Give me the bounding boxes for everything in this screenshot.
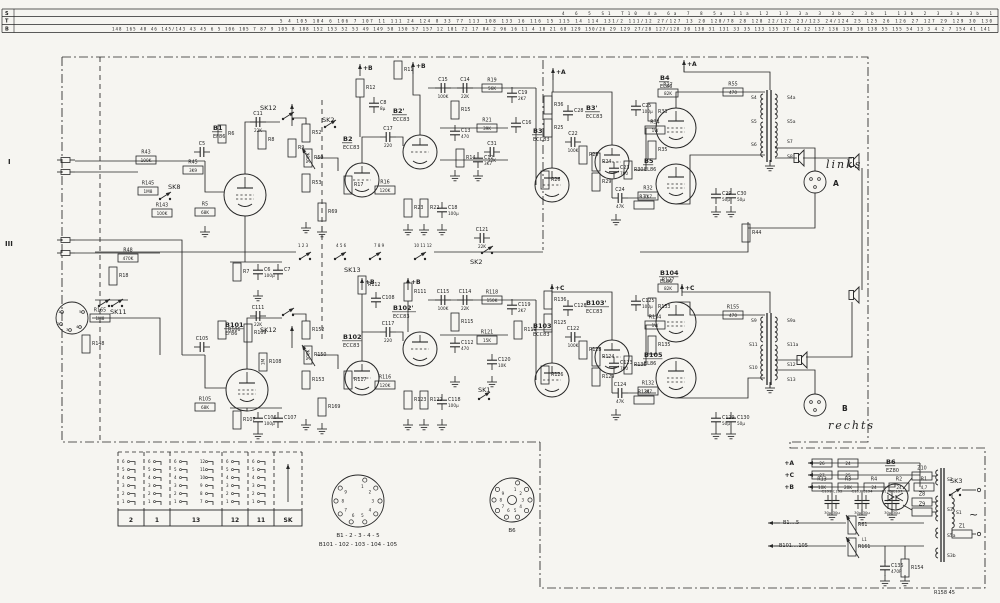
ref-R169: R169 bbox=[328, 404, 341, 410]
wire bbox=[362, 137, 380, 163]
coil bbox=[761, 345, 763, 365]
rect-shape bbox=[912, 508, 932, 516]
wire bbox=[260, 478, 265, 481]
path-shape bbox=[545, 389, 559, 392]
boundary-main-left bbox=[62, 57, 540, 442]
contact-pin-1: 1 bbox=[252, 499, 255, 504]
circle-shape bbox=[374, 486, 378, 490]
ref-R17: R17 bbox=[354, 182, 363, 188]
ref-Z10: Z10 bbox=[917, 466, 926, 472]
text-S3: S3 bbox=[947, 507, 953, 513]
circle-shape bbox=[206, 485, 208, 487]
ref-R48: R48 bbox=[123, 248, 132, 254]
circle-shape bbox=[180, 501, 182, 503]
output-transformer-right bbox=[761, 313, 777, 385]
circle-shape bbox=[814, 186, 817, 189]
tube-id-B2: B2 bbox=[343, 135, 352, 143]
ref-C122: C122 bbox=[567, 326, 580, 332]
rect-shape bbox=[456, 149, 464, 167]
wire bbox=[260, 486, 265, 489]
rail-+B: +B bbox=[358, 64, 373, 76]
wire bbox=[234, 478, 239, 481]
arrowhead bbox=[358, 64, 362, 69]
arrowhead bbox=[290, 326, 294, 331]
part-R155: 470R155 bbox=[723, 305, 743, 320]
ground-symbol bbox=[253, 290, 263, 301]
part-C122: C122100K bbox=[565, 326, 581, 348]
ref-R18: R18 bbox=[119, 273, 128, 279]
ground-symbol bbox=[301, 222, 311, 233]
contact-pin-4: 4 bbox=[226, 475, 229, 480]
wire bbox=[684, 66, 770, 90]
text-SK12: SK12 bbox=[260, 104, 277, 112]
rect-shape bbox=[394, 61, 402, 79]
rail-+C: +C bbox=[550, 284, 565, 296]
part-R152: R152 bbox=[302, 321, 325, 339]
contact-pin-2: 2 bbox=[122, 491, 125, 496]
wire bbox=[748, 193, 815, 228]
arrowhead bbox=[680, 284, 684, 289]
coil bbox=[775, 365, 777, 380]
wire bbox=[260, 462, 265, 465]
ref-C107: C107 bbox=[284, 415, 297, 421]
part-R165: 1M8R165 bbox=[90, 308, 110, 323]
contact-pin-4: 4 bbox=[174, 475, 177, 480]
ref-C14: C14 bbox=[460, 77, 469, 83]
part-R50: 500KR50 bbox=[302, 148, 323, 169]
value-R21: 39K bbox=[483, 126, 491, 131]
coil bbox=[761, 317, 763, 342]
part-R26: R26 bbox=[541, 171, 560, 189]
path-shape bbox=[413, 161, 427, 164]
switch-contact bbox=[414, 252, 426, 260]
arrowhead bbox=[286, 464, 290, 469]
coil bbox=[775, 122, 777, 142]
tube-type-B2: ECC83 bbox=[343, 145, 360, 151]
rect-shape bbox=[233, 411, 241, 429]
arrowhead bbox=[956, 488, 961, 492]
wire bbox=[260, 470, 265, 473]
tube-B103: B103ECC83 bbox=[532, 322, 569, 397]
ref-R108: R108 bbox=[269, 359, 282, 365]
ground-symbol bbox=[419, 419, 429, 430]
part-R153: R153 bbox=[302, 371, 325, 389]
jack-icon bbox=[57, 158, 75, 163]
arrowhead bbox=[306, 252, 311, 256]
circle-shape bbox=[154, 493, 156, 495]
ground-symbol bbox=[403, 224, 413, 235]
text-S4a: S4a bbox=[787, 95, 796, 101]
text-S5: S5 bbox=[751, 119, 757, 125]
pin-5: 5 bbox=[514, 508, 517, 513]
coil bbox=[952, 498, 954, 528]
part-R69: R69 bbox=[318, 203, 337, 221]
rail-+A: +A bbox=[784, 460, 820, 467]
jack-icon bbox=[57, 170, 75, 175]
ref-C105: C105 bbox=[196, 336, 209, 342]
ref-C128: C128 bbox=[574, 303, 587, 309]
ref-R161: R161 bbox=[858, 544, 871, 550]
table-col-label-13: 13 bbox=[192, 517, 200, 524]
wire bbox=[208, 502, 213, 505]
table-column-2: 6543212 bbox=[122, 459, 135, 524]
tube-B102': B102'ECC83 bbox=[392, 304, 437, 366]
tube-id-B3: B3 bbox=[533, 127, 542, 135]
switch-contact bbox=[334, 252, 346, 260]
part-R143: 100KR143 bbox=[152, 203, 172, 218]
circle-shape bbox=[344, 258, 346, 260]
value-R19: 56K bbox=[488, 86, 496, 91]
tube-id-B6: B6 bbox=[886, 458, 896, 466]
ref-R36: R36 bbox=[554, 102, 563, 108]
contact-pin-3: 3 bbox=[174, 483, 177, 488]
ref-R105: R105 bbox=[199, 397, 212, 403]
part-R55: 470R55 bbox=[723, 82, 743, 97]
circle-shape bbox=[128, 485, 130, 487]
circle-shape bbox=[424, 258, 426, 260]
circle-shape bbox=[206, 501, 208, 503]
ref-R33: R33 bbox=[658, 109, 667, 115]
rail-label-+B: +B bbox=[784, 484, 794, 491]
rect-shape bbox=[258, 131, 266, 149]
ruler-row-label-S: S bbox=[5, 11, 9, 17]
circle-shape bbox=[206, 477, 208, 479]
circle-shape bbox=[128, 493, 130, 495]
table-col-label-1: 1 bbox=[155, 517, 159, 524]
rail-label-+A: +A bbox=[687, 61, 697, 68]
part-R169: R169 bbox=[318, 398, 341, 416]
tube-type-B102': ECC83 bbox=[393, 314, 410, 320]
circle-shape bbox=[495, 508, 499, 512]
part-R36: R36 bbox=[544, 96, 563, 114]
wire bbox=[156, 494, 161, 497]
part-R52: R52 bbox=[302, 124, 321, 142]
ruler-row-text-S: 4 6 5 S1 T10 4a 6a 7 8 5a 11a 12 13 3a 3… bbox=[562, 11, 993, 16]
arrowhead bbox=[550, 284, 554, 289]
ref-C5: C5 bbox=[199, 141, 205, 147]
boundary-main bbox=[62, 57, 868, 442]
part-R161: R161 bbox=[846, 537, 871, 558]
circle-shape bbox=[379, 258, 381, 260]
part-C125: C125100µ bbox=[631, 295, 655, 311]
text-SK11: SK11 bbox=[110, 308, 127, 316]
rail-+B: +B bbox=[360, 278, 375, 290]
part-R107: R107 bbox=[233, 411, 256, 429]
rect-shape bbox=[451, 101, 459, 119]
circle-shape bbox=[818, 401, 821, 404]
value-C120: 10K bbox=[498, 363, 506, 368]
circle-shape bbox=[810, 401, 813, 404]
rect-shape bbox=[288, 139, 296, 157]
ref-R11: R11 bbox=[404, 67, 413, 73]
ground-symbol bbox=[880, 575, 890, 586]
rect-shape bbox=[109, 267, 117, 285]
part-Z9: Z9 bbox=[912, 502, 932, 517]
rail-label-+B: +B bbox=[365, 279, 375, 286]
part-C112: C112470 bbox=[450, 337, 474, 353]
coil bbox=[936, 548, 938, 558]
contact-pin-10: 10 bbox=[200, 475, 206, 480]
value-24: 24 bbox=[845, 461, 851, 466]
circle-shape bbox=[154, 469, 156, 471]
component-locator-ruler: S4 6 5 S1 T10 4a 6a 7 8 5a 11a 12 13 3a … bbox=[2, 9, 998, 33]
part-R129: R129 bbox=[592, 368, 615, 386]
ref-R152: R152 bbox=[312, 327, 325, 333]
text-S11: S11 bbox=[749, 342, 758, 348]
value-C25: 100µ bbox=[642, 109, 653, 114]
circle-shape bbox=[490, 478, 534, 522]
pin-9: 9 bbox=[502, 491, 505, 496]
ref-R143: R143 bbox=[156, 203, 169, 209]
part-R34: 1WR34 bbox=[645, 120, 665, 135]
ref-R45: R45 bbox=[188, 160, 197, 166]
value-C11: 22K bbox=[254, 128, 262, 133]
part-R11: R11 bbox=[394, 61, 413, 79]
path-shape bbox=[669, 137, 683, 140]
circle-shape bbox=[491, 252, 493, 254]
part-C108: C108 bbox=[371, 292, 395, 308]
circle-shape bbox=[56, 302, 88, 334]
circle-shape bbox=[206, 493, 208, 495]
wire bbox=[806, 302, 852, 357]
rect-shape bbox=[404, 391, 412, 409]
ref-R16: R16 bbox=[380, 180, 389, 186]
ref-C17: C17 bbox=[383, 126, 392, 132]
circle-shape bbox=[374, 512, 378, 516]
value-R116: 120K bbox=[380, 383, 391, 388]
value-C118: 100µ bbox=[448, 403, 459, 408]
ref-R50: R50 bbox=[314, 155, 323, 161]
part-C8: C88µ bbox=[369, 97, 386, 113]
text-SK8: SK8 bbox=[168, 183, 181, 191]
tube-type-B5: EL86 bbox=[644, 167, 656, 173]
circle-shape bbox=[69, 329, 72, 332]
ground-symbol bbox=[403, 419, 413, 430]
table-column-12: 65432112 bbox=[226, 459, 239, 524]
ref-C108: C108 bbox=[382, 295, 395, 301]
rect-shape bbox=[514, 321, 522, 339]
outputs bbox=[794, 150, 859, 416]
text-SK1: SK1 bbox=[478, 386, 491, 394]
rect-shape bbox=[544, 291, 552, 309]
ref-C117: C117 bbox=[382, 321, 395, 327]
value-R165: 1M8 bbox=[96, 316, 105, 321]
wire bbox=[156, 502, 161, 505]
arrowhead bbox=[421, 252, 426, 256]
contact-pin-1: 1 bbox=[122, 499, 125, 504]
wire bbox=[208, 494, 213, 497]
circle-shape bbox=[495, 487, 499, 491]
tube-id-B102: B102 bbox=[343, 333, 362, 341]
ref-C115: C115 bbox=[437, 289, 450, 295]
circle-shape bbox=[128, 461, 130, 463]
ruler-row-label-T: T bbox=[5, 18, 9, 24]
tube-B6: B6EZ80 bbox=[882, 458, 908, 510]
ref-R145: R145 bbox=[142, 181, 155, 187]
ref-C131 C132: C131 C132 bbox=[821, 489, 843, 494]
speaker-icon bbox=[849, 287, 859, 303]
rail-label-+B: +B bbox=[363, 65, 373, 72]
arrowhead bbox=[289, 112, 294, 116]
value-R16: 120K bbox=[380, 188, 391, 193]
wire bbox=[676, 378, 765, 398]
circle-shape bbox=[180, 461, 182, 463]
circle-shape bbox=[206, 469, 208, 471]
value-C135: 470P bbox=[891, 569, 902, 574]
value-R32: 2K7 bbox=[644, 194, 652, 199]
text-SK13: SK13 bbox=[344, 266, 361, 274]
value-C15: 100K bbox=[438, 94, 449, 99]
ref-R116: R116 bbox=[379, 375, 392, 381]
coil bbox=[775, 345, 777, 365]
part-C106: C106100µ bbox=[253, 412, 277, 428]
tube-id-B102': B102' bbox=[393, 304, 414, 312]
part-R18: R18 bbox=[109, 267, 128, 285]
value-C121: 22K bbox=[478, 244, 486, 249]
speaker-connector-B bbox=[804, 394, 826, 416]
part-R15: R15 bbox=[451, 101, 470, 119]
part-C105: C105 bbox=[194, 336, 210, 352]
contact-pin-5: 5 bbox=[226, 467, 229, 472]
value-C19: 2K7 bbox=[518, 96, 526, 101]
part-R23: R23 bbox=[404, 199, 423, 217]
ground-symbol bbox=[726, 206, 736, 217]
tube-pinouts: 123456789B1 - 2 - 3 - 4 - 5B101 - 102 - … bbox=[319, 475, 534, 548]
tube-id-B4: B4 bbox=[660, 74, 670, 82]
part-R150: 500KR150 bbox=[302, 345, 327, 366]
part-R148: R148 bbox=[82, 335, 105, 353]
tube-type-B102: ECC83 bbox=[343, 343, 360, 349]
pin-8: 8 bbox=[342, 499, 345, 504]
circle-shape bbox=[977, 532, 980, 535]
value-R108: 1M bbox=[261, 358, 266, 365]
ground-symbol bbox=[317, 423, 327, 434]
contact-pin-1: 1 bbox=[226, 499, 229, 504]
part-C22: C22100K bbox=[565, 131, 581, 153]
wire bbox=[208, 486, 213, 489]
coil bbox=[775, 94, 777, 119]
switch-contact bbox=[949, 488, 961, 496]
rect-shape bbox=[541, 366, 549, 384]
ground-symbol bbox=[611, 214, 621, 225]
text-4-5-6: 4 5 6 bbox=[336, 243, 347, 248]
circle-shape bbox=[82, 311, 85, 314]
part-R134: 1WR134 bbox=[645, 315, 665, 330]
ground-symbol bbox=[437, 419, 447, 430]
wire bbox=[234, 502, 239, 505]
tube-type-B3': ECC83 bbox=[586, 114, 603, 120]
ground-symbol bbox=[711, 206, 721, 217]
wire bbox=[130, 494, 135, 497]
contact-pin-12: 12 bbox=[200, 459, 206, 464]
rail-+C: +C bbox=[680, 284, 695, 296]
coil bbox=[775, 142, 777, 157]
table-column-1: 6543211 bbox=[148, 459, 161, 524]
path-shape bbox=[854, 287, 860, 303]
ground-symbol bbox=[711, 428, 721, 439]
part-R123: R123 bbox=[404, 391, 427, 409]
value-C124: 47K bbox=[616, 399, 624, 404]
text-S6: S6 bbox=[751, 142, 757, 148]
part-C7: C7 bbox=[273, 264, 290, 280]
circle-shape bbox=[309, 258, 311, 260]
circle-shape bbox=[128, 477, 130, 479]
rail-label-+B: +B bbox=[416, 63, 426, 70]
part-R118: 150KR118 bbox=[482, 290, 502, 305]
table-col-label-2: 2 bbox=[129, 517, 133, 524]
rail-+A: +A bbox=[551, 68, 566, 80]
ref-C22: C22 bbox=[568, 131, 577, 137]
circle-shape bbox=[180, 469, 182, 471]
circle-shape bbox=[232, 461, 234, 463]
tube-id-B5: B5 bbox=[644, 157, 654, 165]
value-C136 C137: 30µ 30µ bbox=[884, 510, 900, 515]
circle-shape bbox=[180, 477, 182, 479]
contact-pin-5: 5 bbox=[252, 467, 255, 472]
contact-pin-5: 5 bbox=[122, 467, 125, 472]
pinout-caption: B6 bbox=[508, 528, 516, 534]
rect-shape bbox=[592, 173, 600, 191]
ground-symbol bbox=[200, 226, 210, 237]
pin-4: 4 bbox=[519, 504, 522, 509]
wire bbox=[130, 470, 135, 473]
coil bbox=[761, 122, 763, 142]
tube-B102: B102ECC83 bbox=[342, 333, 379, 395]
wire bbox=[208, 470, 213, 473]
switch-contact-table: 6543212654321165432112111098713654321126… bbox=[118, 452, 302, 526]
tube-type-B3: ECC83 bbox=[533, 137, 550, 143]
value-R5: 68K bbox=[201, 210, 209, 215]
contact-pin-6: 6 bbox=[174, 459, 177, 464]
wire bbox=[676, 302, 765, 315]
part-R44: R44 bbox=[742, 224, 761, 242]
part-R45: 3K9R45 bbox=[183, 160, 203, 175]
arrowhead bbox=[289, 308, 294, 312]
circle-shape bbox=[814, 409, 817, 412]
value-R1: 4,7 bbox=[921, 485, 928, 490]
pin-2: 2 bbox=[519, 491, 522, 496]
circle-shape bbox=[232, 469, 234, 471]
circle-shape bbox=[232, 477, 234, 479]
ref-R61: R61 bbox=[858, 522, 867, 528]
part-C121: C12122K bbox=[474, 227, 490, 249]
rail-+A: +A bbox=[682, 60, 697, 72]
ref-C124: C124 bbox=[614, 382, 627, 388]
ref-R126: R126 bbox=[551, 372, 564, 378]
part-C29: C2950µ bbox=[711, 188, 731, 204]
tube-type-B2': ECC83 bbox=[393, 117, 410, 123]
ref-R106: R106 bbox=[228, 327, 241, 333]
wire bbox=[130, 478, 135, 481]
ref-C28: C28 bbox=[574, 108, 583, 114]
text-S11a: S11a bbox=[787, 342, 799, 348]
part-R43: 100KR43 bbox=[136, 150, 156, 165]
ref-R119: R119 bbox=[524, 327, 537, 333]
tube-id-B103': B103' bbox=[586, 299, 607, 307]
ref-C136 C137: C136 C137 bbox=[881, 489, 903, 494]
value-C13: 470 bbox=[461, 134, 469, 139]
text-S3a: S3a bbox=[947, 533, 956, 539]
ref-R111: R111 bbox=[414, 289, 427, 295]
text-A: A bbox=[833, 179, 839, 188]
circle-shape bbox=[128, 469, 130, 471]
wire bbox=[362, 332, 380, 361]
part-C135: C135470P bbox=[880, 560, 904, 576]
part-R8: R8 bbox=[258, 131, 274, 149]
ref-R44: R44 bbox=[752, 230, 761, 236]
arrowhead bbox=[290, 104, 294, 109]
circle-shape bbox=[504, 515, 508, 519]
